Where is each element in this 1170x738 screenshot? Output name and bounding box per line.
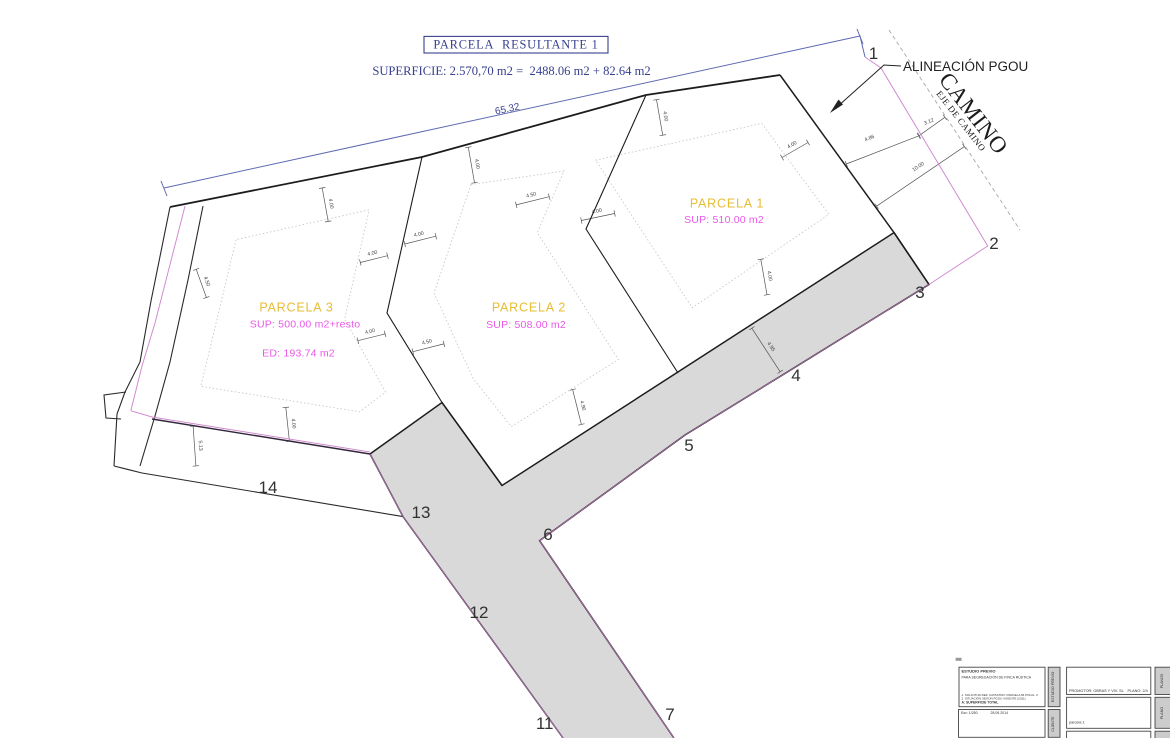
svg-text:ALINEACIÓN PGOU: ALINEACIÓN PGOU [903, 59, 1028, 74]
svg-text:PARCELA 3: PARCELA 3 [259, 301, 333, 315]
svg-text:4.00: 4.00 [290, 418, 297, 429]
svg-text:7: 7 [665, 705, 674, 724]
svg-text:ESTUDIO PREVIO: ESTUDIO PREVIO [962, 669, 996, 674]
svg-text:ESTUDIO PREVIO: ESTUDIO PREVIO [1051, 672, 1055, 703]
svg-text:ED: 193.74 m2: ED: 193.74 m2 [262, 348, 335, 360]
svg-text:14: 14 [259, 478, 278, 497]
svg-text:2: 2 [989, 234, 998, 253]
svg-text:28.09.2014: 28.09.2014 [991, 711, 1009, 715]
svg-text:1: 1 [869, 44, 878, 63]
svg-text:PROMOTOR: OBRAS Y VIV. SL: PROMOTOR: OBRAS Y VIV. SL [1069, 689, 1124, 693]
svg-text:PLANO: PLANO [1160, 707, 1164, 719]
svg-text:SUP: 510.00 m2: SUP: 510.00 m2 [684, 214, 764, 226]
svg-text:12: 12 [470, 603, 489, 622]
svg-text:PARA SEGREGACIÓN DE FINCA RÚST: PARA SEGREGACIÓN DE FINCA RÚSTICA [962, 675, 1032, 680]
svg-text:11: 11 [536, 714, 554, 733]
svg-text:5.13: 5.13 [197, 440, 204, 451]
svg-text:6: 6 [543, 525, 552, 544]
svg-text:PARCELA RESULTANTE 1: PARCELA RESULTANTE 1 [433, 38, 598, 52]
svg-text:A: SUPERFICIE TOTAL: A: SUPERFICIE TOTAL [962, 701, 999, 705]
svg-text:5: 5 [684, 436, 693, 455]
svg-text:PARCELA 1: PARCELA 1 [690, 197, 764, 211]
svg-text:Esc: 1/250: Esc: 1/250 [961, 711, 978, 715]
svg-text:3: 3 [915, 283, 924, 302]
svg-text:13: 13 [412, 503, 431, 522]
svg-text:4: 4 [791, 366, 800, 385]
svg-text:PARCELA 2: PARCELA 2 [492, 301, 566, 315]
svg-text:SUPERFICIE: 2.570,70 m2 = 248: SUPERFICIE: 2.570,70 m2 = 2488.06 m2 + 8… [372, 64, 650, 78]
svg-text:PLANO: 2/4: PLANO: 2/4 [1128, 689, 1148, 693]
svg-text:SUP: 500.00 m2+resto: SUP: 500.00 m2+resto [250, 319, 361, 331]
svg-text:PLANOS: PLANOS [1160, 673, 1164, 688]
svg-text:CLIENTE: CLIENTE [1051, 716, 1055, 732]
svg-text:parcela 1: parcela 1 [1069, 721, 1085, 725]
svg-text:SUP: 508.00 m2: SUP: 508.00 m2 [486, 319, 566, 331]
